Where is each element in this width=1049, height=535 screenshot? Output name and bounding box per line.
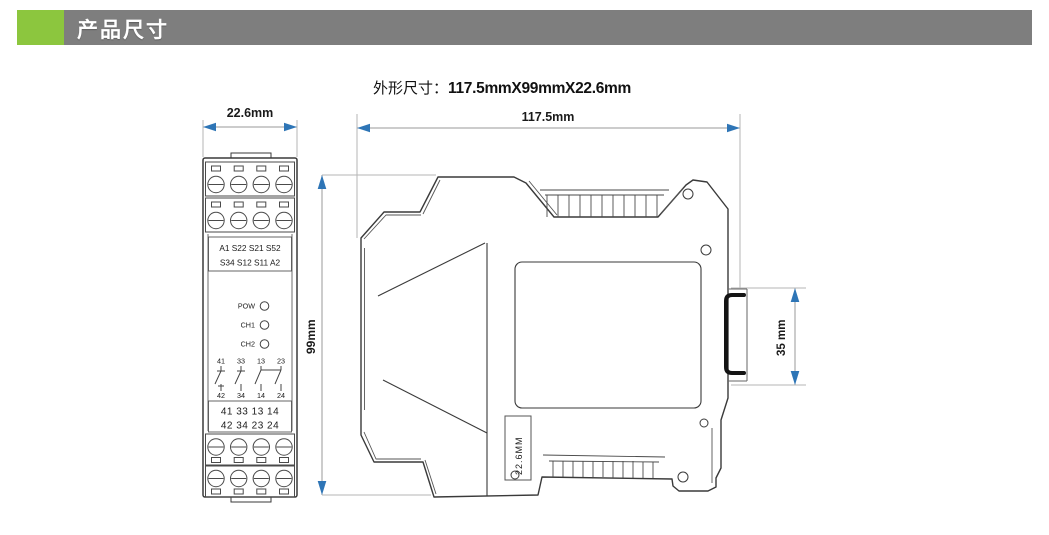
contact-num: 24 (277, 391, 285, 400)
terminal-designations-row1: A1 S22 S21 S52 (219, 243, 281, 253)
module-side-outline (361, 177, 728, 497)
arrow-down-icon (791, 371, 800, 385)
contact-num: 33 (237, 357, 245, 366)
length-dimension: 117.5mm (357, 110, 740, 288)
arrow-down-icon (318, 481, 327, 495)
height-dimension: 99mm (304, 175, 436, 495)
front-width-dimension: 22.6mm (203, 106, 297, 157)
depth-marking: 22.6MM (505, 416, 531, 480)
led-label-pow: POW (238, 302, 255, 311)
terminal-numbers-row2: 42 34 23 24 (221, 421, 279, 432)
section-header-bar: 产品尺寸 (17, 10, 1032, 45)
depth-label: 22.6MM (514, 436, 524, 475)
contact-num: 13 (257, 357, 265, 366)
led-label-ch2: CH2 (241, 340, 255, 349)
header-accent-square (17, 10, 64, 45)
rail-label: 35 mm (776, 320, 788, 356)
rail-dimension: 35 mm (731, 288, 806, 385)
terminal-designations-row2: S34 S12 S11 A2 (220, 258, 281, 268)
terminal-number-box: 41 33 13 14 42 34 23 24 (209, 401, 292, 432)
page-root: 产品尺寸 外形尺寸：117.5mmX99mmX22.6mm 22.6mm (0, 0, 1049, 535)
arrow-left-icon (357, 124, 370, 133)
height-label: 99mm (304, 319, 318, 354)
page-title: 产品尺寸 (77, 14, 169, 44)
label-plate (515, 262, 701, 408)
contact-num: 34 (237, 391, 245, 400)
arrow-left-icon (203, 123, 216, 131)
caption-label: 外形尺寸： (373, 80, 448, 97)
contact-num: 23 (277, 357, 285, 366)
length-label: 117.5mm (522, 110, 575, 124)
terminal-rib-comb-bottom (543, 455, 665, 478)
front-view-drawing: 22.6mm (193, 100, 309, 512)
terminal-numbers-row1: 41 33 13 14 (221, 407, 279, 418)
front-width-label: 22.6mm (227, 106, 274, 120)
led-label-ch1: CH1 (241, 321, 255, 330)
arrow-up-icon (791, 288, 800, 302)
side-view-drawing: 117.5mm 99mm 35 mm (295, 98, 825, 528)
din-rail-clip (726, 289, 747, 381)
contact-num: 14 (257, 391, 265, 400)
overall-dimensions-caption: 外形尺寸：117.5mmX99mmX22.6mm (373, 77, 631, 98)
contact-num: 42 (217, 391, 225, 400)
caption-value: 117.5mmX99mmX22.6mm (448, 80, 631, 97)
arrow-up-icon (318, 175, 327, 189)
terminal-rib-comb-top (540, 190, 669, 217)
arrow-right-icon (727, 124, 740, 133)
contact-num: 41 (217, 357, 225, 366)
